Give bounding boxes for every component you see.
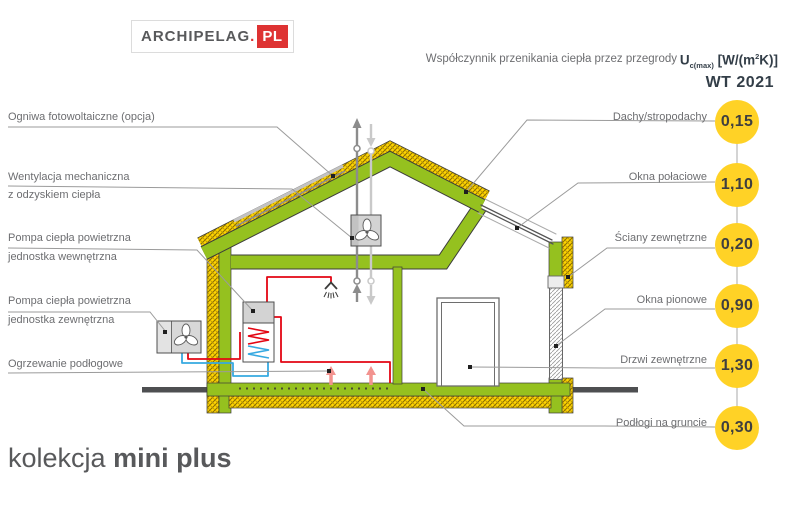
hot-water-pipe [267,277,331,303]
u-value-badge-ground-floors: 0,30 [715,406,759,450]
label-external-doors: Drzwi zewnętrzne [620,354,707,367]
ventilation-unit [351,215,381,246]
standard-wt2021: WT 2021 [706,74,774,92]
u-value-badge-external-walls: 0,20 [715,223,759,267]
collection-prefix: kolekcja [8,443,106,473]
header-title: Współczynnik przenikania ciepła przez pr… [426,53,677,66]
archipelag-logo: ARCHIPELAG.PL [131,20,294,53]
u-units-close: K)] [759,53,778,68]
label-underfloor-heating: Ogrzewanie podłogowe [8,358,123,371]
vertical-window [548,276,564,380]
skylight-window [478,199,556,248]
u-value-badge-roofs: 0,15 [715,100,759,144]
u-value-badge-vertical-windows: 0,90 [715,284,759,328]
window-roller-box [548,276,564,288]
label-heat-pump-indoor-line1: Pompa ciepła powietrzna [8,232,131,245]
logo-brand-text: ARCHIPELAG [141,28,250,45]
label-heat-pump-outdoor-line2: jednostka zewnętrzna [8,314,114,327]
floor-heat-arrows [326,366,376,385]
collection-name: mini plus [113,443,232,473]
label-ventilation-line2: z odzyskiem ciepła [8,189,100,202]
label-ventilation-line1: Wentylacja mechaniczna [8,171,129,184]
label-heat-pump-outdoor-line1: Pompa ciepła powietrzna [8,295,131,308]
label-roofs: Dachy/stropodachy [613,111,707,124]
u-subscript: c(max) [690,61,714,70]
label-vertical-windows: Okna pionowe [637,294,707,307]
shower-icon [324,283,338,299]
heat-pump-outdoor-unit [157,321,201,353]
partition-wall [393,267,402,384]
floor-slab [207,383,570,408]
label-external-walls: Ściany zewnętrzne [615,232,707,245]
page: ARCHIPELAG.PL Współczynnik przenikania c… [0,0,787,530]
collection-title: kolekcja mini plus [8,443,232,474]
exhaust-duct [353,118,362,302]
heat-pump-indoor-unit [243,302,274,362]
u-symbol: U [680,53,690,68]
u-value-badge-roof-windows: 1,10 [715,163,759,207]
logo-country-badge: PL [257,25,287,48]
u-value-formula: Uc(max) [W/(m2K)] [680,52,778,70]
logo-dot: . [250,28,254,45]
exterior-door [437,298,499,386]
u-units-open: [W/(m [714,53,755,68]
label-roof-windows: Okna połaciowe [629,171,707,184]
label-heat-pump-indoor-line2: jednostka wewnętrzna [8,251,117,264]
u-value-badge-external-doors: 1,30 [715,344,759,388]
building-shell [200,147,573,413]
label-ground-floors: Podłogi na gruncie [616,417,707,430]
label-photovoltaic: Ogniwa fotowoltaiczne (opcja) [8,111,155,124]
